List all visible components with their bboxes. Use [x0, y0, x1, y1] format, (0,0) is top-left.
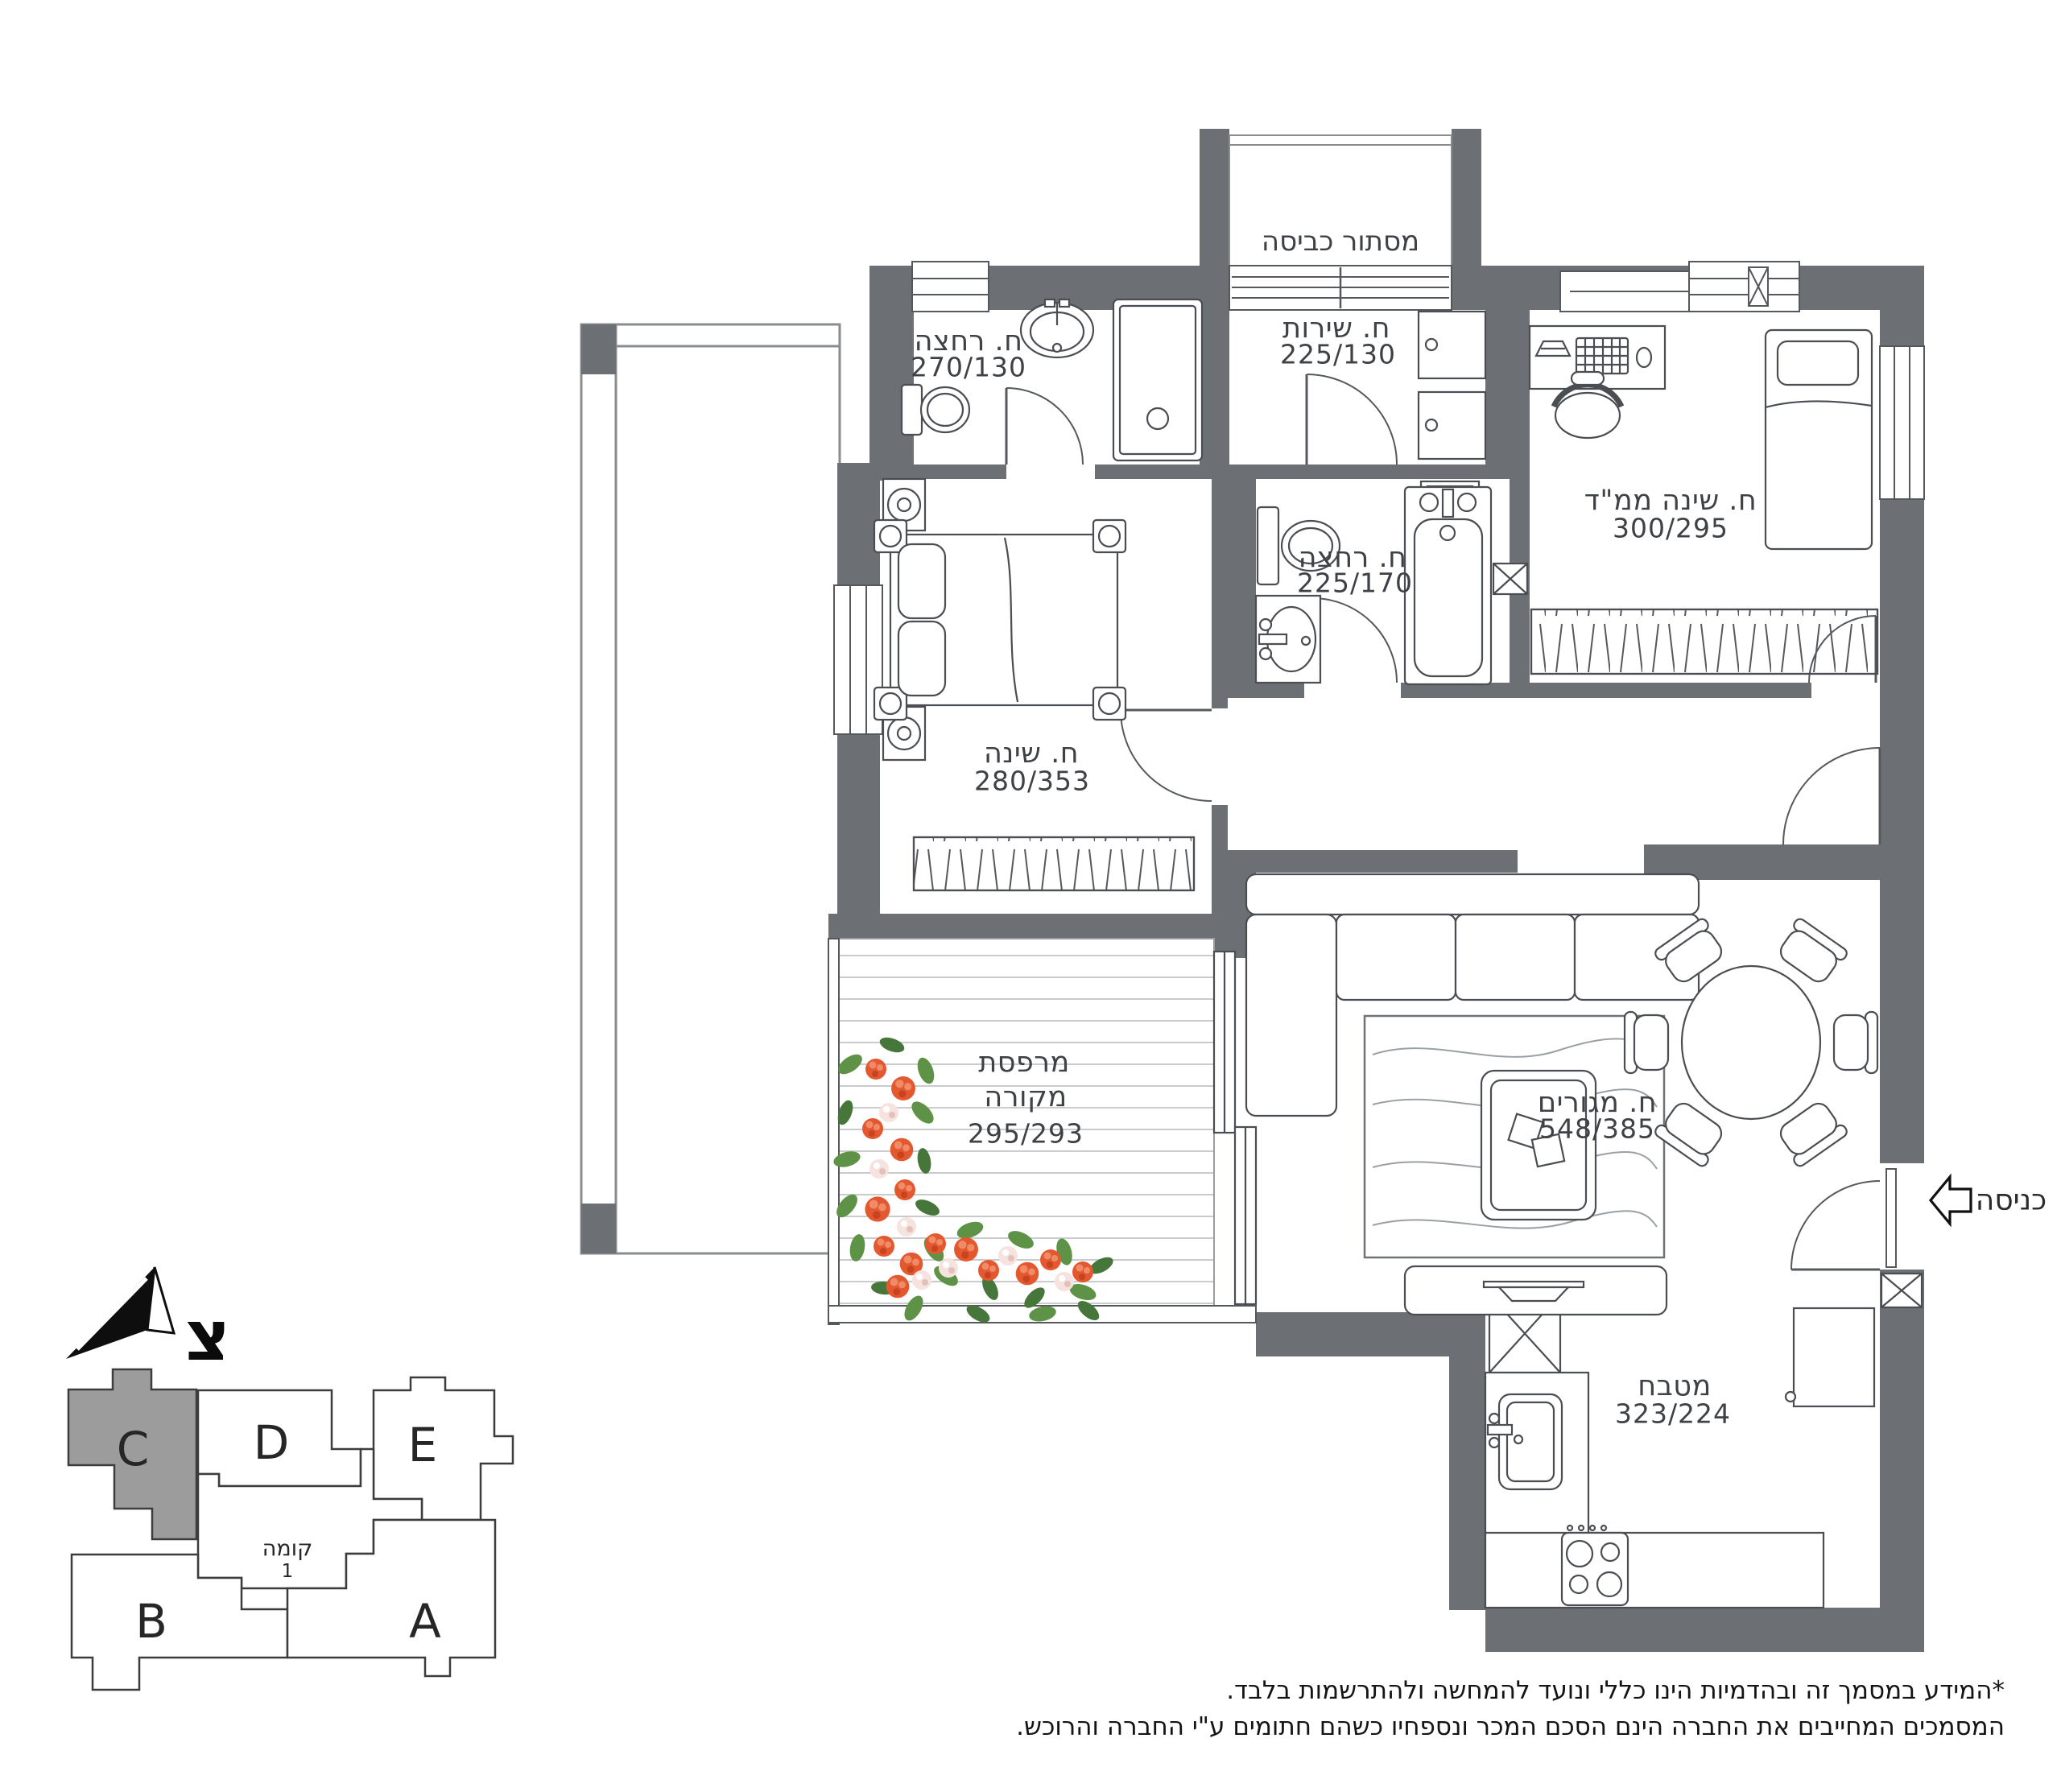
counter-bottom: [1485, 1533, 1824, 1608]
floorplan-drawing: [0, 0, 2061, 1792]
keyplan-letter-d: D: [254, 1415, 290, 1470]
door-wc: [1307, 374, 1397, 465]
north-arrow-icon: [66, 1267, 174, 1359]
balcony-rail-left: [828, 939, 839, 1324]
shaft-bath: [1493, 564, 1527, 594]
single-bed-icon: [1766, 330, 1872, 549]
label-wc-dims: 225/130: [1280, 339, 1396, 370]
disclaimer-line-1: *המידע במסמך זה ובהדמיות הינו כללי ונועד…: [797, 1673, 2005, 1709]
kitchen-sink-icon: [1488, 1394, 1562, 1489]
keyplan-letter-c: C: [117, 1422, 150, 1476]
label-balcony-name2: מקורה: [984, 1081, 1067, 1113]
door-bedroom: [1121, 710, 1212, 801]
disclaimer-line-2: המסמכים המחייבים את החברה הינם הסכם המכר…: [797, 1709, 2005, 1745]
tv-console-icon: [1405, 1266, 1667, 1315]
shower-icon: [1113, 299, 1202, 460]
stove-icon: [1562, 1526, 1628, 1605]
double-bed-icon: [874, 520, 1125, 720]
label-laundry: מסתור כביסה: [1262, 225, 1419, 258]
door-bath-mid: [1312, 598, 1397, 683]
label-balcony-name1: מרפסת: [978, 1047, 1070, 1079]
laundry-niche: [1229, 135, 1452, 310]
keyplan-letter-b: B: [135, 1594, 167, 1649]
wardrobe-icon: [914, 837, 1194, 890]
door-hallway: [1783, 748, 1880, 844]
vent-entrance: [1881, 1274, 1922, 1307]
label-bedroom-dims: 280/353: [974, 766, 1090, 797]
label-entrance: כניסה: [1976, 1184, 2047, 1217]
door-entrance: [1791, 1163, 1924, 1270]
label-mamad-dims: 300/295: [1613, 513, 1729, 544]
floorplan-canvas: מסתור כביסה ח. רחצה 270/130 ח. שירות 225…: [0, 0, 2061, 1792]
north-letter: צ: [185, 1296, 230, 1377]
keyplan-floor-number: 1: [282, 1561, 294, 1582]
keyplan-floor-word: קומה: [262, 1537, 313, 1562]
disclaimer-text: *המידע במסמך זה ובהדמיות הינו כללי ונועד…: [797, 1673, 2005, 1745]
furniture-bedroom: [874, 479, 1194, 890]
keyplan-letter-a: A: [409, 1594, 441, 1649]
cabinet-icon: [1419, 312, 1485, 378]
cabinet-icon: [1419, 392, 1485, 459]
dining-table-icon: [1625, 917, 1877, 1168]
fridge-icon: [1786, 1308, 1874, 1406]
label-living-dims: 548/385: [1539, 1113, 1655, 1145]
door-bath-top: [1006, 388, 1083, 465]
keyplan-letter-e: E: [408, 1418, 438, 1472]
entrance-arrow-icon: [1931, 1177, 1971, 1224]
label-bath-top-dims: 270/130: [911, 352, 1026, 383]
toilet-icon: [902, 385, 969, 435]
label-kitchen-dims: 323/224: [1615, 1398, 1731, 1430]
closet-icon: [1531, 609, 1877, 674]
neighbor-terrace-outline: [581, 324, 840, 1253]
vanity-sink-icon: [1256, 596, 1320, 683]
bathtub-icon: [1405, 487, 1491, 684]
label-bath-mid-dims: 225/170: [1297, 568, 1413, 599]
label-balcony-dims: 295/293: [968, 1118, 1084, 1150]
